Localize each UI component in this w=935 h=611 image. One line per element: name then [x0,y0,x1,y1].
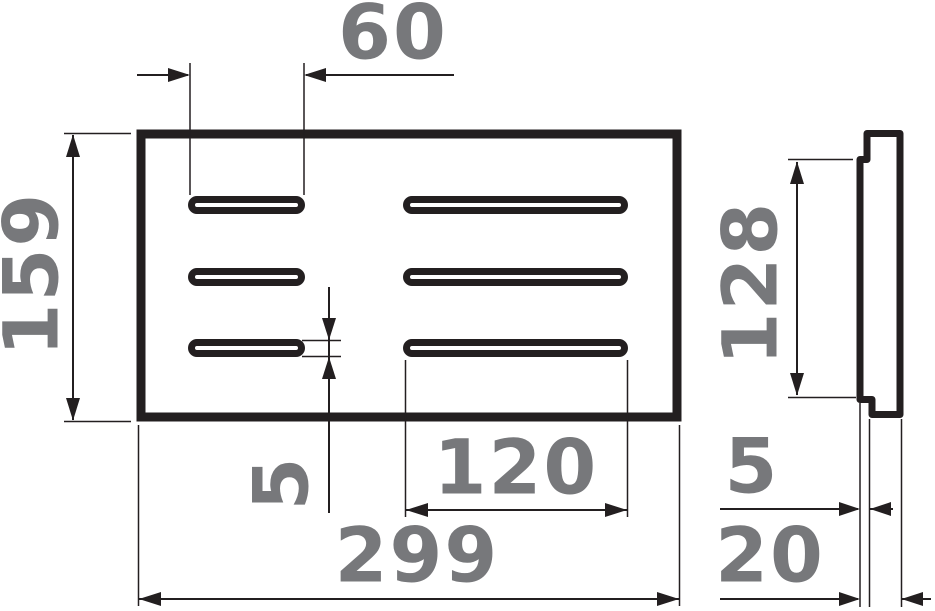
slot-long-row1 [407,200,625,211]
arrowhead-right-icon [605,503,627,517]
dim-label-60: 60 [338,0,448,77]
dim-overall-height: 159 [0,134,131,422]
dim-label-slot-5: 5 [237,456,326,511]
arrowhead-right-icon [657,592,679,606]
slot-short-row3 [192,343,302,354]
dim-label-20: 20 [715,511,825,600]
side-view [860,134,900,415]
arrowhead-left-icon [304,68,326,82]
arrowhead-right-icon [168,68,190,82]
dim-label-120: 120 [434,423,599,512]
arrowhead-down-icon [790,373,804,396]
slot-short-row1 [192,200,302,211]
dim-label-128: 128 [706,201,795,366]
slot-long-row3 [407,343,625,354]
arrowhead-left-icon [139,592,161,606]
arrowhead-left-icon [902,592,924,606]
arrowhead-up-icon [66,135,80,158]
side-profile-outline [860,134,900,415]
arrowhead-right-icon [839,592,860,606]
dim-label-side-5: 5 [725,422,780,511]
dim-overall-width: 299 [139,425,680,606]
dim-label-299: 299 [335,511,500,600]
dim-lip-height: 128 [706,160,857,398]
slot-long-row2 [407,272,625,283]
arrowhead-up-icon [790,162,804,185]
arrowhead-left-icon [870,502,891,516]
technical-drawing-page: 60 159 5 120 299 [0,0,935,611]
dim-label-159: 159 [0,192,76,357]
front-view [141,134,677,417]
arrowhead-down-icon [66,398,80,421]
technical-drawing-canvas: 60 159 5 120 299 [0,0,935,611]
slot-short-row2 [192,272,302,283]
arrowhead-right-icon [839,502,860,516]
